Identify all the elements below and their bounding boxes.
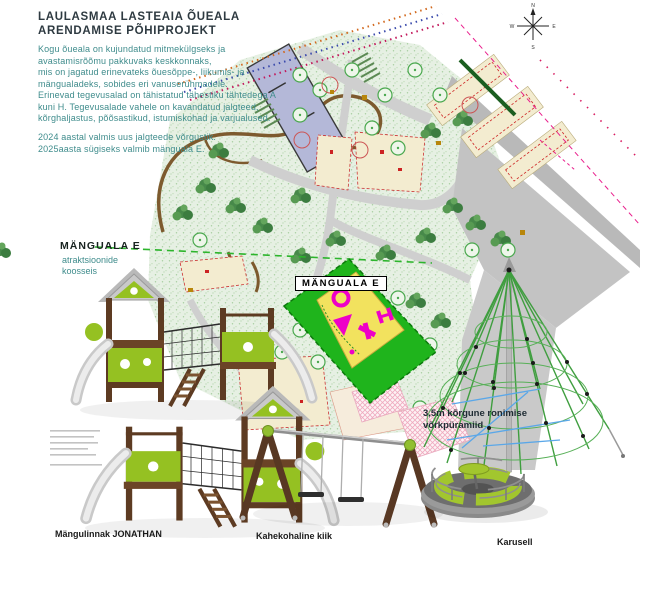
page-title: LAULASMAA LASTEAIA ÕUEALA ARENDAMISE PÕH… [38,10,240,38]
carousel-caption: Karusell [497,537,533,547]
intro-paragraph: Kogu õueala on kujundatud mitmekülgseks … [38,44,245,90]
fine-print-placeholder [50,430,102,466]
paragraph-line: Erinevad tegevusalad on tähistatud tähes… [38,90,276,102]
project-poster: N E S W [0,0,650,596]
compass-w: W [510,24,515,30]
title-line-2: ARENDAMISE PÕHIPROJEKT [38,24,240,38]
paragraph-line: 2025aasta sügiseks valmib mänguala E. [38,144,216,156]
paragraph-line: mis on jagatud erinevateks õuesõppe-, li… [38,67,245,79]
caption-line: võrkpüramiid [423,420,527,432]
paragraph-line: avastamisrõõmu pakkuvaks keskkonnaks, [38,56,245,68]
swing-caption: Kahekohaline kiik [256,531,332,541]
paragraph-line: kuni H. Tegevusalade vahele on kavandatu… [38,102,276,114]
compass-rose-icon: N E S W [510,3,557,51]
title-line-1: LAULASMAA LASTEAIA ÕUEALA [38,10,240,24]
compass-e: E [552,24,556,30]
label-line: koosseis [62,266,118,277]
timeline-paragraph: 2024 aastal valmis uus jalgteede võrgust… [38,132,216,155]
pyramid-caption: 3,5m kõrgune ronimise võrkpüramiid [423,408,527,432]
compass-s: S [531,45,535,51]
paragraph-line: Kogu õueala on kujundatud mitmekülgseks … [38,44,245,56]
swing-seat [338,497,364,502]
castle-caption: Mängulinnak JONATHAN [55,529,162,539]
swing-seat [298,492,324,497]
map-zone-label: MÄNGUALA E [295,276,387,291]
paragraph-line: mängualadeks, sobides eri vanuserühmadel… [38,79,245,91]
playarea-label-heading: MÄNGUALA E [60,240,141,252]
paragraph-line: 2024 aastal valmis uus jalgteede võrgust… [38,132,216,144]
caption-line: 3,5m kõrgune ronimise [423,408,527,420]
paragraph-line: kõrghaljastus, põõsastikud, istumiskohad… [38,113,276,125]
label-line: atraktsioonide [62,255,118,266]
playarea-label-sub: atraktsioonide koosseis [62,255,118,277]
compass-n: N [531,3,535,9]
zones-paragraph: Erinevad tegevusalad on tähistatud tähes… [38,90,276,125]
